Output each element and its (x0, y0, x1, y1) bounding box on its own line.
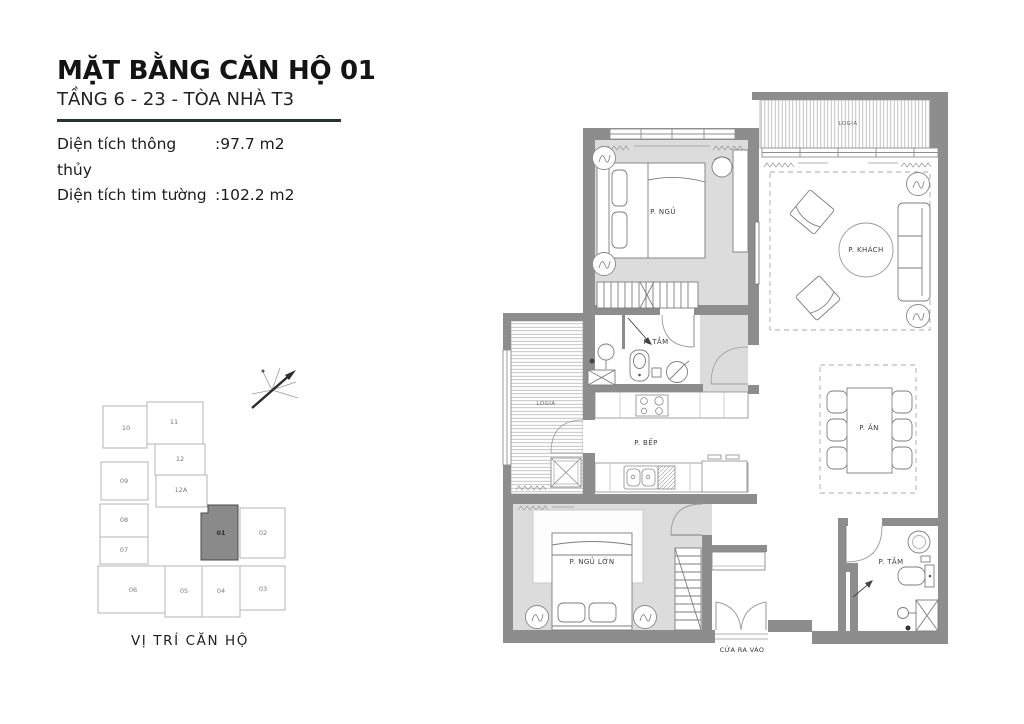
bathroom2-fixtures (846, 526, 938, 631)
keyplan-unit-04: 04 (217, 587, 225, 595)
keyplan-unit-03: 03 (259, 585, 267, 593)
room-label-logia-top: LOGIA (838, 121, 857, 127)
keyplan-caption: VỊ TRÍ CĂN HỘ (131, 633, 249, 649)
entry-elements (712, 552, 768, 639)
floor-plan-page: MẶT BẰNG CĂN HỘ 01 TẦNG 6 - 23 - TÒA NHÀ… (0, 0, 1024, 724)
room-label-bathroom-1: P. TẮM (643, 338, 668, 346)
keyplan-unit-02: 02 (259, 529, 267, 537)
keyplan-unit-09: 09 (120, 477, 128, 485)
keyplan-unit-06: 06 (129, 586, 137, 594)
keyplan-unit-07: 07 (120, 546, 128, 554)
room-label-dining: P. ĂN (859, 424, 879, 432)
room-label-kitchen: P. BẾP (634, 439, 657, 447)
keyplan-unit-11: 11 (170, 418, 178, 426)
entrance-label: CỬA RA VÀO (720, 646, 765, 654)
keyplan-unit-01: 01 (216, 529, 225, 537)
keyplan-unit-08: 08 (120, 516, 128, 524)
bathroom1-fixtures (588, 315, 694, 385)
floor-plan-drawing (0, 0, 1024, 724)
room-label-living: P. KHÁCH (848, 246, 883, 254)
north-arrow-icon (252, 368, 298, 408)
keyplan-unit-12a: 12A (175, 486, 188, 494)
keyplan-unit-12: 12 (176, 455, 184, 463)
key-plan-map (98, 402, 285, 617)
room-label-bedroom: P. NGỦ (650, 208, 676, 216)
room-label-logia-side: LOGIA (536, 401, 555, 407)
keyplan-unit-10: 10 (122, 424, 130, 432)
keyplan-unit-05: 05 (180, 587, 188, 595)
room-label-master-bedroom: P. NGỦ LỚN (569, 558, 614, 566)
room-label-bathroom-2: P. TẮM (878, 558, 903, 566)
